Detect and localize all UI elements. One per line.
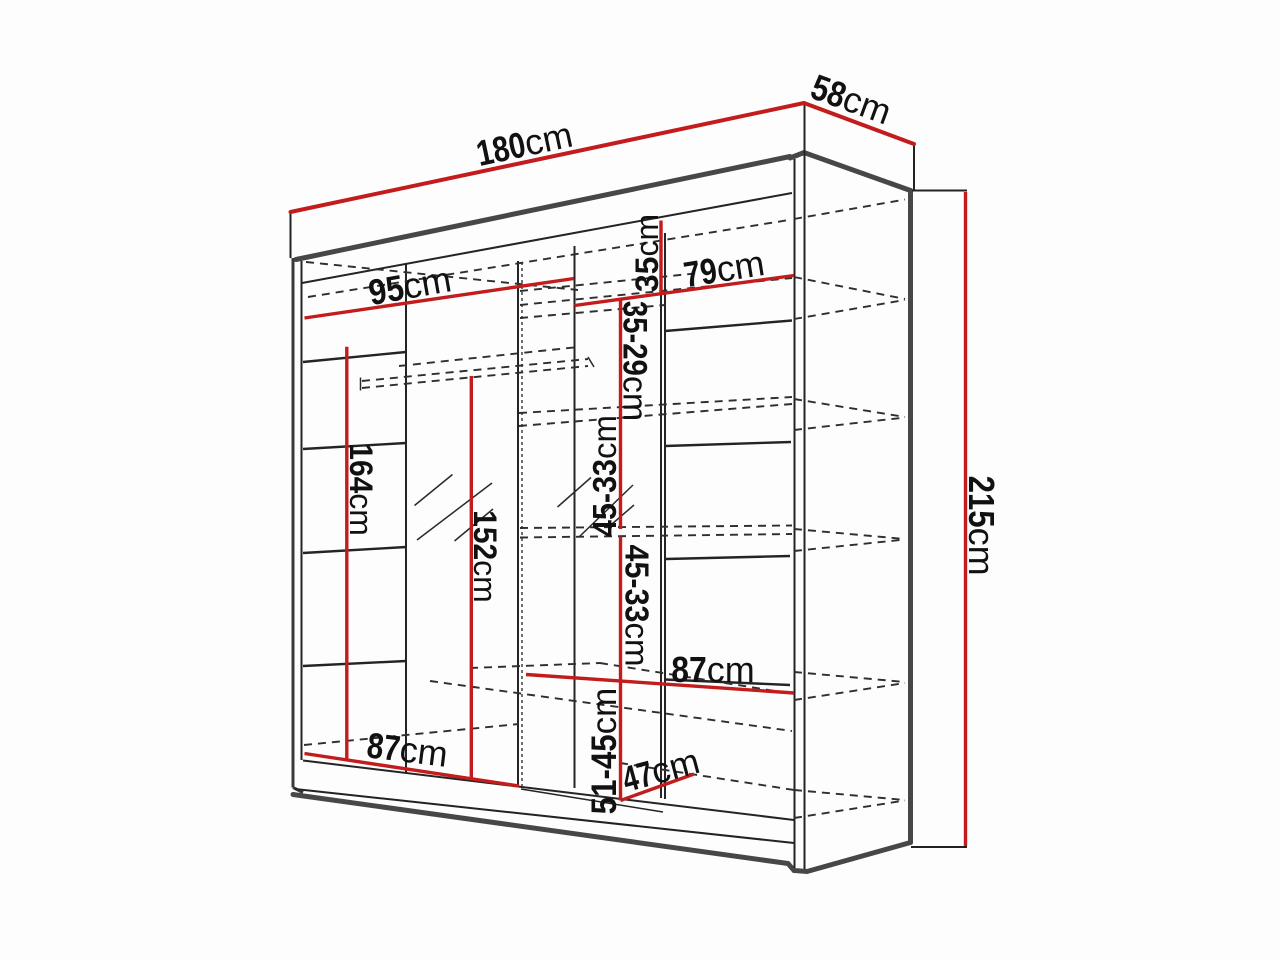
- svg-text:35-29cm: 35-29cm: [616, 301, 654, 421]
- svg-text:35cm: 35cm: [629, 214, 665, 292]
- svg-text:45-33cm: 45-33cm: [619, 545, 656, 667]
- svg-text:152cm: 152cm: [467, 510, 503, 603]
- svg-text:164cm: 164cm: [343, 443, 379, 536]
- svg-text:87cm: 87cm: [671, 649, 755, 690]
- svg-text:51-45cm: 51-45cm: [585, 688, 624, 815]
- svg-text:45-33cm: 45-33cm: [586, 415, 623, 537]
- svg-text:215cm: 215cm: [961, 476, 1002, 576]
